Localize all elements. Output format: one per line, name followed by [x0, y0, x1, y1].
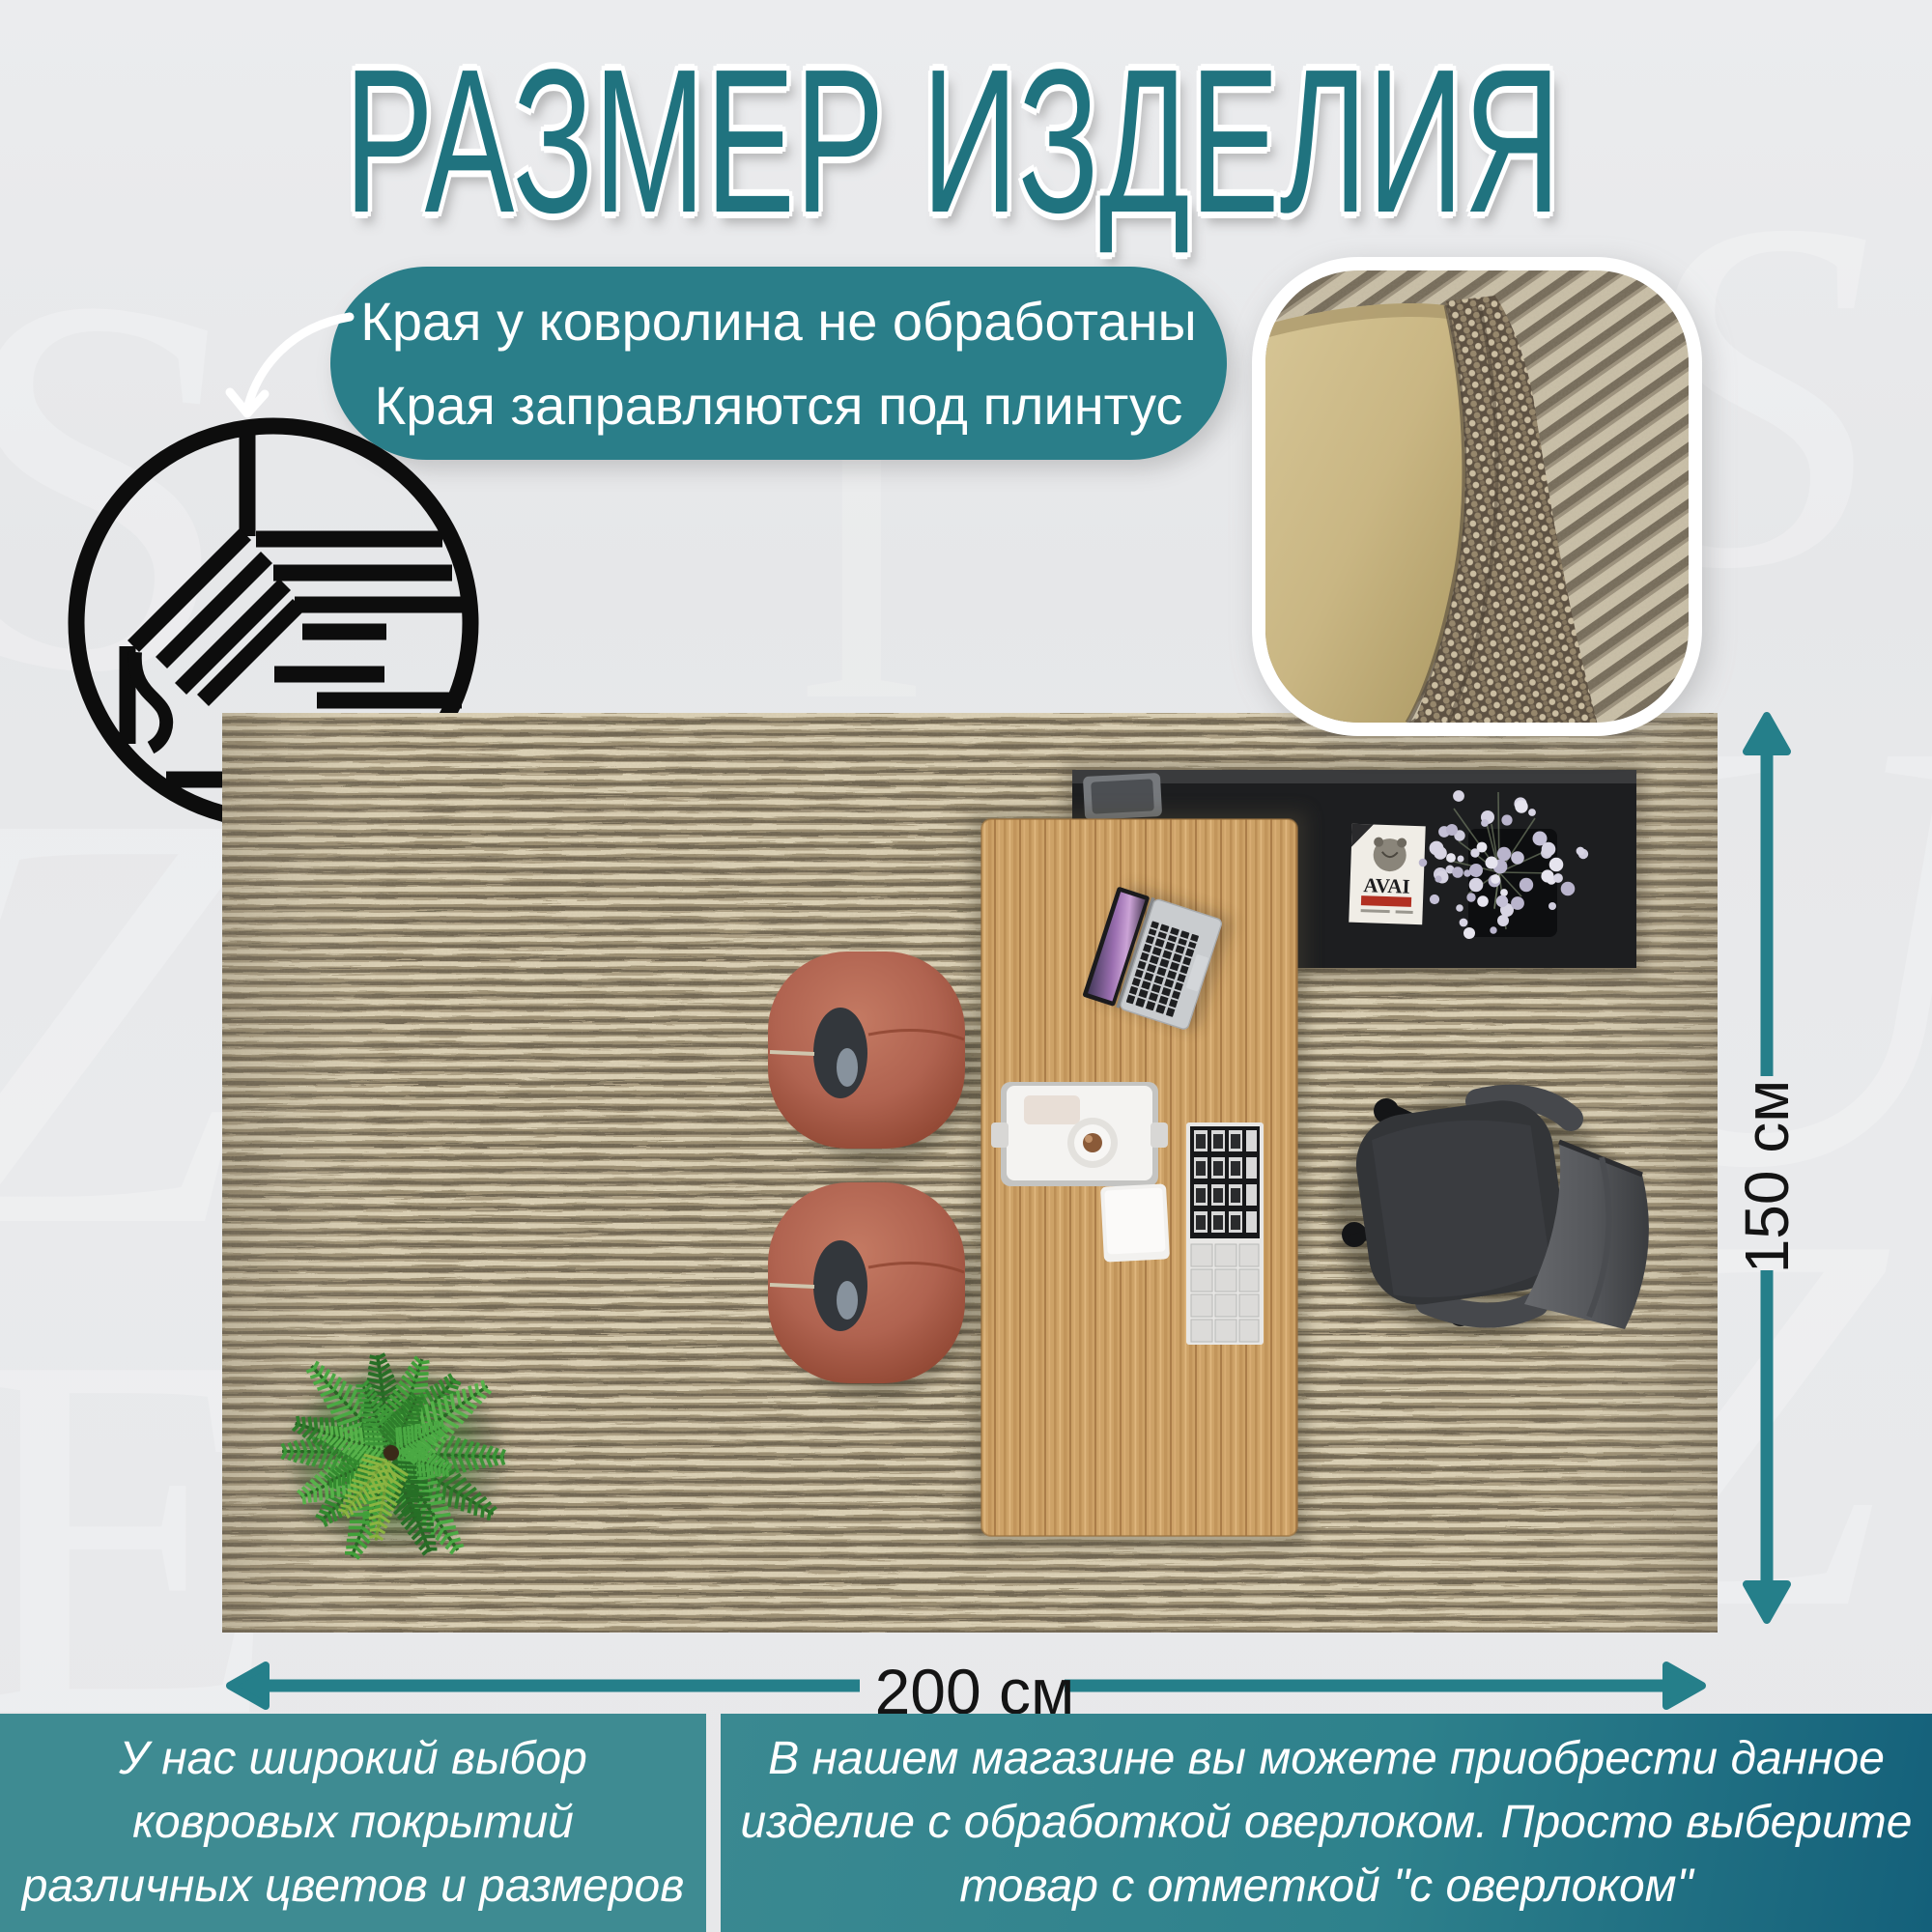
svg-text:AVAI: AVAI	[1363, 873, 1410, 898]
